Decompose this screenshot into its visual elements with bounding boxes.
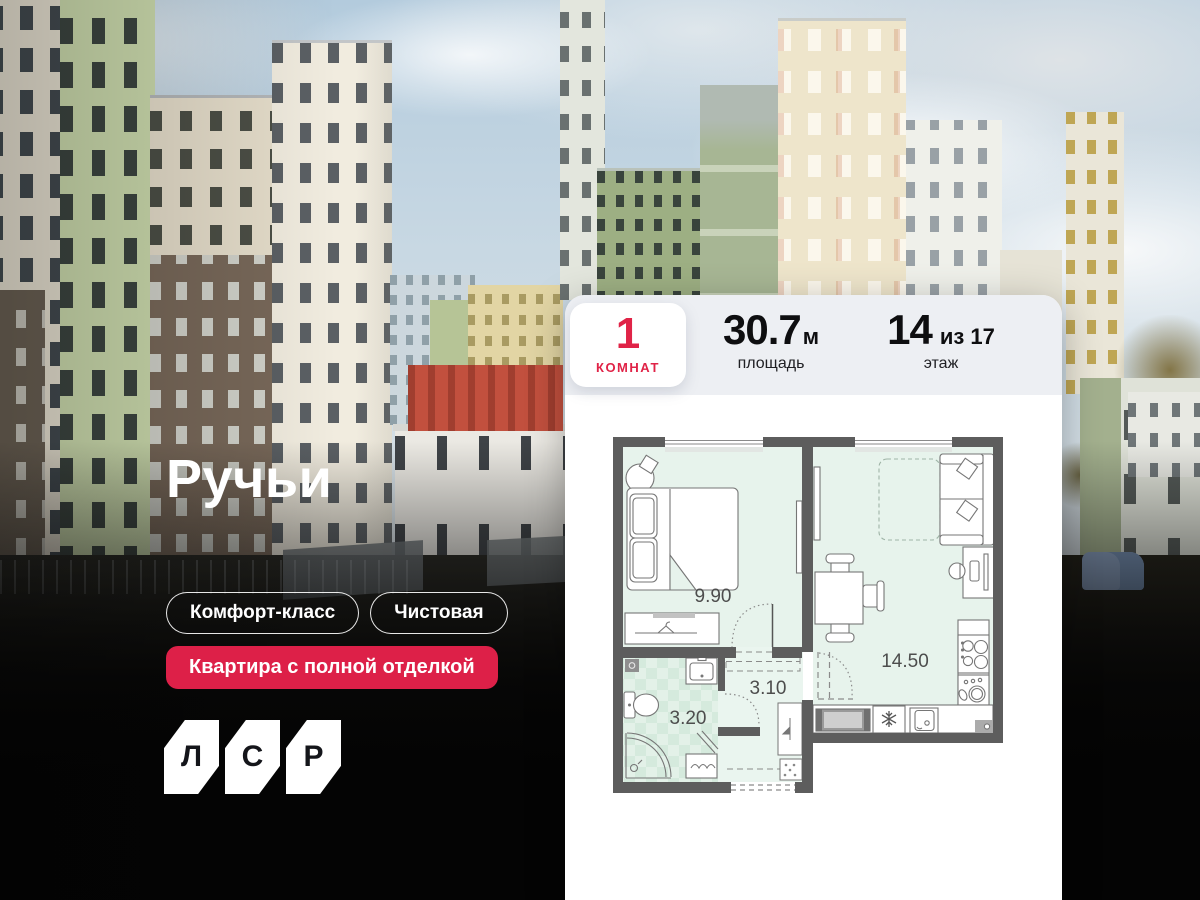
sofa-icon xyxy=(940,454,994,545)
project-title: Ручьи xyxy=(166,448,332,510)
washer-icon xyxy=(910,708,938,733)
floor-value: 14из 17 xyxy=(856,309,1026,351)
bed-icon xyxy=(627,488,738,590)
listing-banner: Ручьи Комфорт-класс Чистовая Квартира с … xyxy=(0,0,1200,900)
full-finish-badge: Квартира с полной отделкой xyxy=(166,646,498,689)
area-label: площадь xyxy=(686,355,856,373)
logo-cube-r: Р xyxy=(286,720,341,794)
bedroom-area-label: 9.90 xyxy=(695,586,732,607)
living-area-label: 14.50 xyxy=(881,651,929,672)
floorplan: 9.90 14.50 3.10 3.20 xyxy=(613,437,1003,793)
logo-letter: С xyxy=(242,740,264,774)
toilet-icon xyxy=(624,692,659,718)
rooms-value: 1 xyxy=(570,303,686,356)
dish-sink-icon xyxy=(958,675,989,705)
bedroom-door-panel xyxy=(797,501,803,573)
wardrobe-hanger-icon xyxy=(625,613,719,644)
lsr-logo: Л С Р xyxy=(164,720,341,794)
tag-row: Комфорт-класс Чистовая xyxy=(166,592,508,634)
area-value: 30.7м xyxy=(686,309,856,351)
fridge-snowflake-icon xyxy=(873,706,905,733)
laundry-basket-icon xyxy=(686,754,717,778)
logo-cube-s: С xyxy=(225,720,280,794)
floor-of: из 17 xyxy=(940,324,995,349)
stats-header: 1 КОМНАТ 30.7м площадь 14из 17 этаж xyxy=(565,295,1062,395)
tag-comfort-class: Комфорт-класс xyxy=(166,592,359,634)
area-stat: 30.7м площадь xyxy=(686,295,856,395)
floor-label: этаж xyxy=(856,355,1026,373)
bathroom-area-label: 3.20 xyxy=(670,708,707,729)
bathroom-sink-icon xyxy=(686,657,717,685)
stove-burners-icon xyxy=(958,635,989,673)
floor-stat: 14из 17 этаж xyxy=(856,295,1026,395)
rooms-stat: 1 КОМНАТ xyxy=(570,303,686,387)
entry-door-icon xyxy=(731,782,795,793)
tag-finishing: Чистовая xyxy=(370,592,507,634)
hallway-area-label: 3.10 xyxy=(750,678,787,699)
logo-letter: Р xyxy=(303,740,323,774)
apartment-card[interactable]: 1 КОМНАТ 30.7м площадь 14из 17 этаж xyxy=(565,295,1062,900)
area-unit: м xyxy=(803,324,819,349)
logo-cube-l: Л xyxy=(164,720,219,794)
rooms-label: КОМНАТ xyxy=(570,360,686,375)
dark-cabinet xyxy=(816,709,870,731)
logo-letter: Л xyxy=(181,740,202,774)
drain-unit xyxy=(625,659,639,672)
radiator xyxy=(814,467,820,540)
